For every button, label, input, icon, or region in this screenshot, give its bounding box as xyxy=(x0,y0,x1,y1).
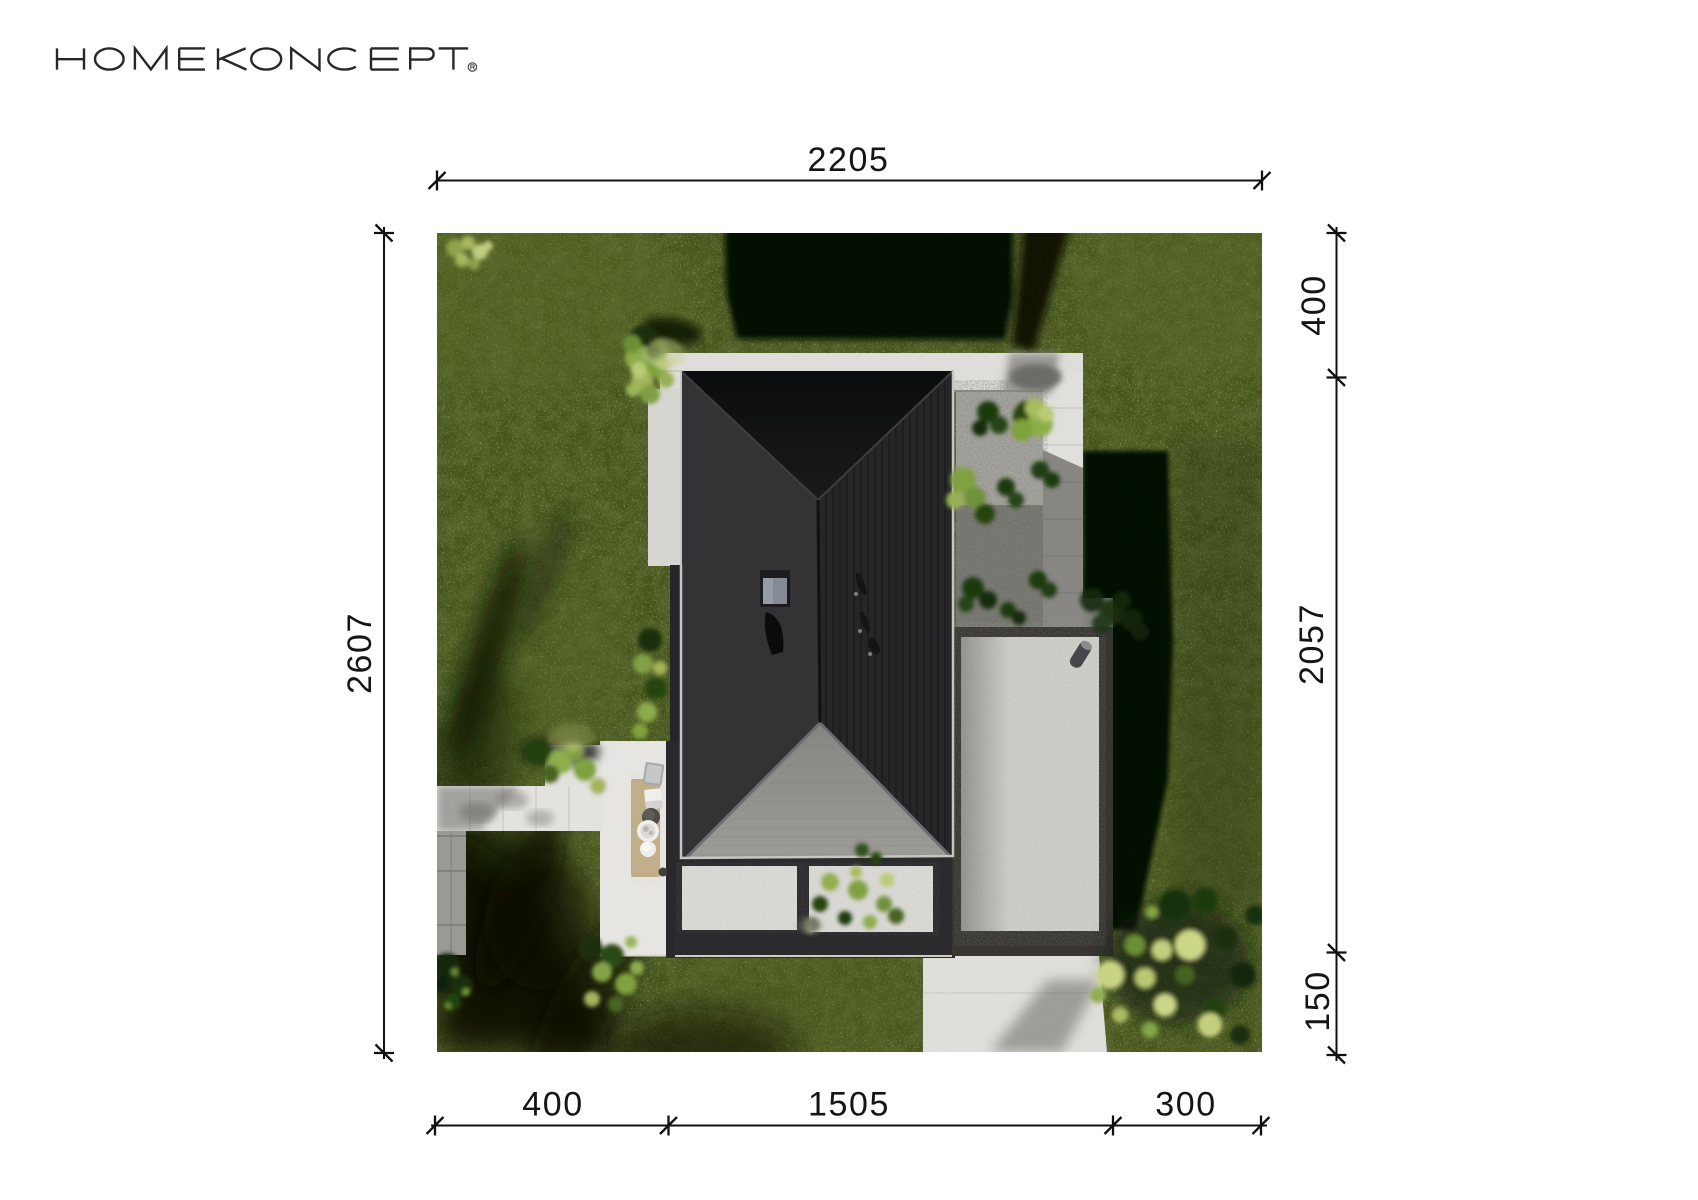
svg-text:2607: 2607 xyxy=(341,612,379,694)
svg-text:2057: 2057 xyxy=(1293,603,1331,685)
svg-text:2205: 2205 xyxy=(807,141,889,179)
svg-text:400: 400 xyxy=(522,1085,584,1123)
svg-text:1505: 1505 xyxy=(808,1085,890,1123)
svg-text:150: 150 xyxy=(1299,970,1337,1032)
svg-text:400: 400 xyxy=(1295,274,1333,336)
svg-text:300: 300 xyxy=(1155,1085,1217,1123)
